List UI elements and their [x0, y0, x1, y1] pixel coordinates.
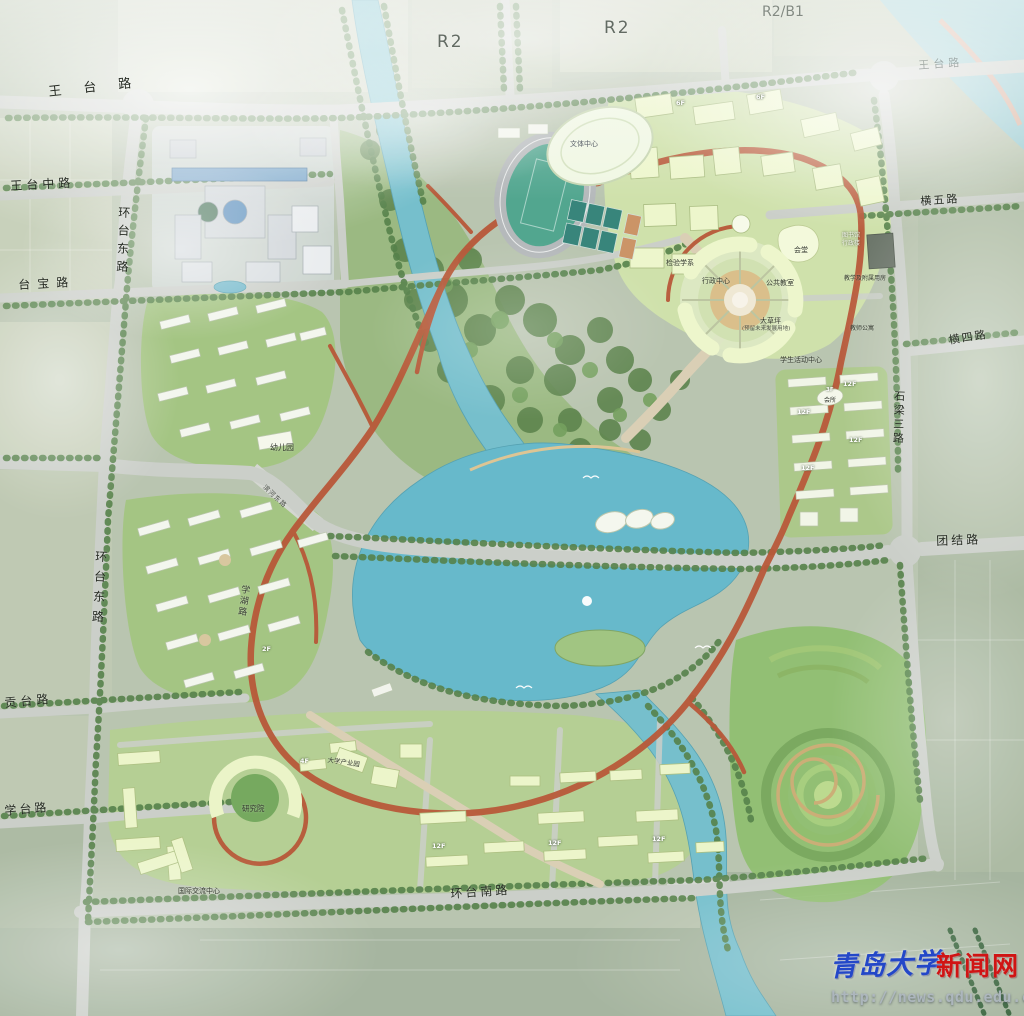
facility-label-auditorium: 会堂 — [794, 247, 808, 254]
zone-label-r2b1: R2/B1 — [762, 5, 804, 19]
facility-label-research-institute: 研究院 — [242, 805, 265, 813]
floor-tag: 6F — [756, 94, 765, 101]
watermark-url: http://news.qdu.edu.cn — [831, 990, 1024, 1005]
floor-tag: 12F — [843, 381, 857, 388]
floor-tag: 6F — [676, 100, 685, 107]
facility-label-kindergarten: 幼儿园 — [270, 444, 294, 452]
road-label-hengwu: 横五路 — [920, 193, 960, 207]
facility-label-admin-center: 行政中心 — [702, 278, 730, 285]
facility-label-great-lawn: 大草坪 — [760, 318, 781, 325]
floor-tag: 12F — [548, 840, 562, 847]
facility-label-great-lawn-note: (预留未来发展用地) — [742, 327, 790, 333]
floor-tag: 12F — [849, 437, 863, 444]
floor-tag: 12F — [797, 409, 811, 416]
facility-label-sports-center: 文体中心 — [570, 141, 598, 148]
floor-tag: 12F — [432, 843, 446, 850]
road-label-shiliang-san: 石梁三路 — [892, 390, 905, 446]
facility-label-teaching-annex: 教学及附属用房 — [844, 276, 886, 282]
map-artwork — [0, 0, 1024, 1016]
floor-tag: 12F — [652, 836, 666, 843]
zone-label-r2-west: R2 — [437, 34, 464, 51]
floor-tag: 2F — [262, 646, 271, 653]
road-label-tuanjie: 团结路 — [936, 533, 981, 547]
road-label-taibao: 台宝路 — [18, 276, 76, 291]
road-label-huantai-dong-north: 环台东路 — [115, 206, 130, 278]
watermark-site-name: 青岛大学 — [830, 950, 943, 981]
campus-master-plan-map: R2 R2 R2/B1 王台路 王台路 王台中路 环台东路 台宝路 环台东路 贡… — [0, 0, 1024, 1016]
facility-label-public-classrooms: 公共教室 — [766, 280, 794, 287]
facility-label-student-center: 学生活动中心 — [780, 357, 822, 364]
watermark-site-suffix: 新闻网 — [936, 954, 1020, 980]
zone-label-wangtai-ghost: 王台路 — [918, 57, 964, 71]
facility-label-library: 图书馆 — [842, 233, 860, 239]
facility-label-clubhouse: 会所 — [824, 398, 836, 404]
facility-label-admin-building: 行政楼 — [842, 241, 860, 247]
zone-label-r2-east: R2 — [604, 20, 631, 37]
facility-label-intl-exchange-center: 国际交流中心 — [178, 888, 220, 895]
road-label-wangtai-zhong: 王台中路 — [10, 177, 75, 192]
floor-tag: 3F — [826, 388, 834, 394]
fog-overlay — [0, 0, 1024, 1016]
floor-tag: 12F — [801, 465, 815, 472]
road-label-xuetai: 学台路 — [4, 801, 50, 817]
floor-tag: 4F — [300, 758, 309, 765]
facility-label-departments: 检验学系 — [666, 260, 694, 267]
facility-label-faculty-apartments: 教师公寓 — [850, 326, 874, 332]
